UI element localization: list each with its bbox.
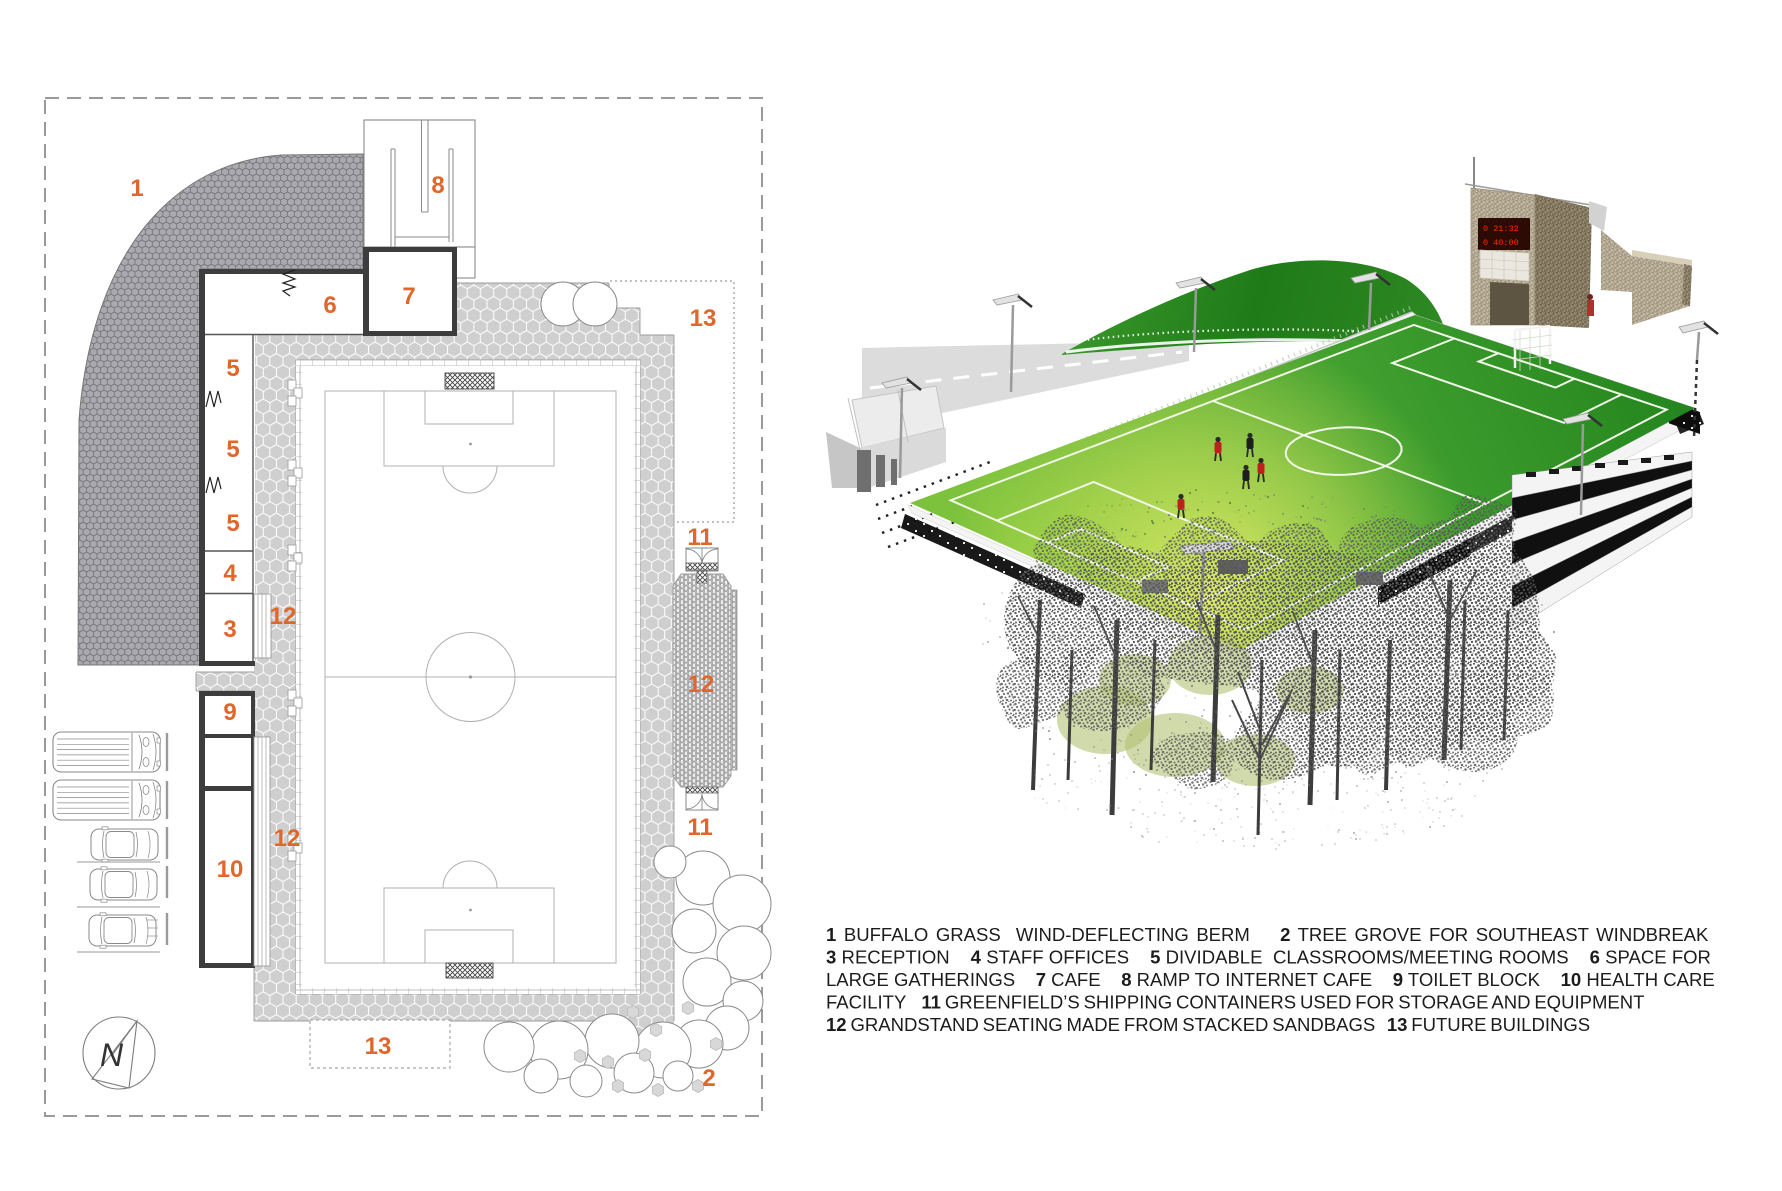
svg-text:12: 12 (270, 603, 297, 630)
svg-text:5: 5 (226, 510, 239, 537)
svg-text:1: 1 (130, 175, 143, 202)
svg-text:4: 4 (223, 560, 237, 587)
svg-text:13: 13 (365, 1033, 392, 1060)
svg-text:2: 2 (702, 1065, 715, 1092)
svg-text:1 BUFFALO GRASS WIND-DEFLECTI: 1 BUFFALO GRASS WIND-DEFLECTING BERM 2 T… (826, 924, 1709, 945)
svg-text:8: 8 (431, 172, 444, 199)
svg-text:10: 10 (217, 856, 244, 883)
svg-text:11: 11 (687, 814, 712, 841)
svg-text:12 GRANDSTAND SEATING MADE FRO: 12 GRANDSTAND SEATING MADE FROM STACKED … (826, 1014, 1590, 1035)
svg-text:0 21:32: 0 21:32 (1483, 224, 1519, 234)
svg-text:9: 9 (223, 699, 236, 726)
svg-text:12: 12 (688, 671, 715, 698)
svg-text:11: 11 (687, 524, 712, 551)
svg-text:N: N (100, 1037, 124, 1073)
svg-text:3 RECEPTION 4 STAFF OFFICES: 3 RECEPTION 4 STAFF OFFICES 5 DIVIDABLE … (826, 947, 1711, 968)
svg-text:5: 5 (226, 436, 239, 463)
svg-text:12: 12 (274, 825, 301, 852)
svg-text:13: 13 (690, 305, 717, 332)
svg-text:0 40:00: 0 40:00 (1483, 238, 1519, 248)
svg-text:6: 6 (323, 292, 336, 319)
svg-text:LARGE GATHERINGS 7 CAFE: LARGE GATHERINGS 7 CAFE 8 RAMP TO INTERN… (826, 969, 1715, 990)
svg-text:5: 5 (226, 355, 239, 382)
svg-text:7: 7 (402, 283, 415, 310)
svg-text:FACILITY 11 GREENFIELD’S SH: FACILITY 11 GREENFIELD’S SHIPPING CONTAI… (826, 992, 1645, 1013)
svg-text:3: 3 (223, 616, 236, 643)
